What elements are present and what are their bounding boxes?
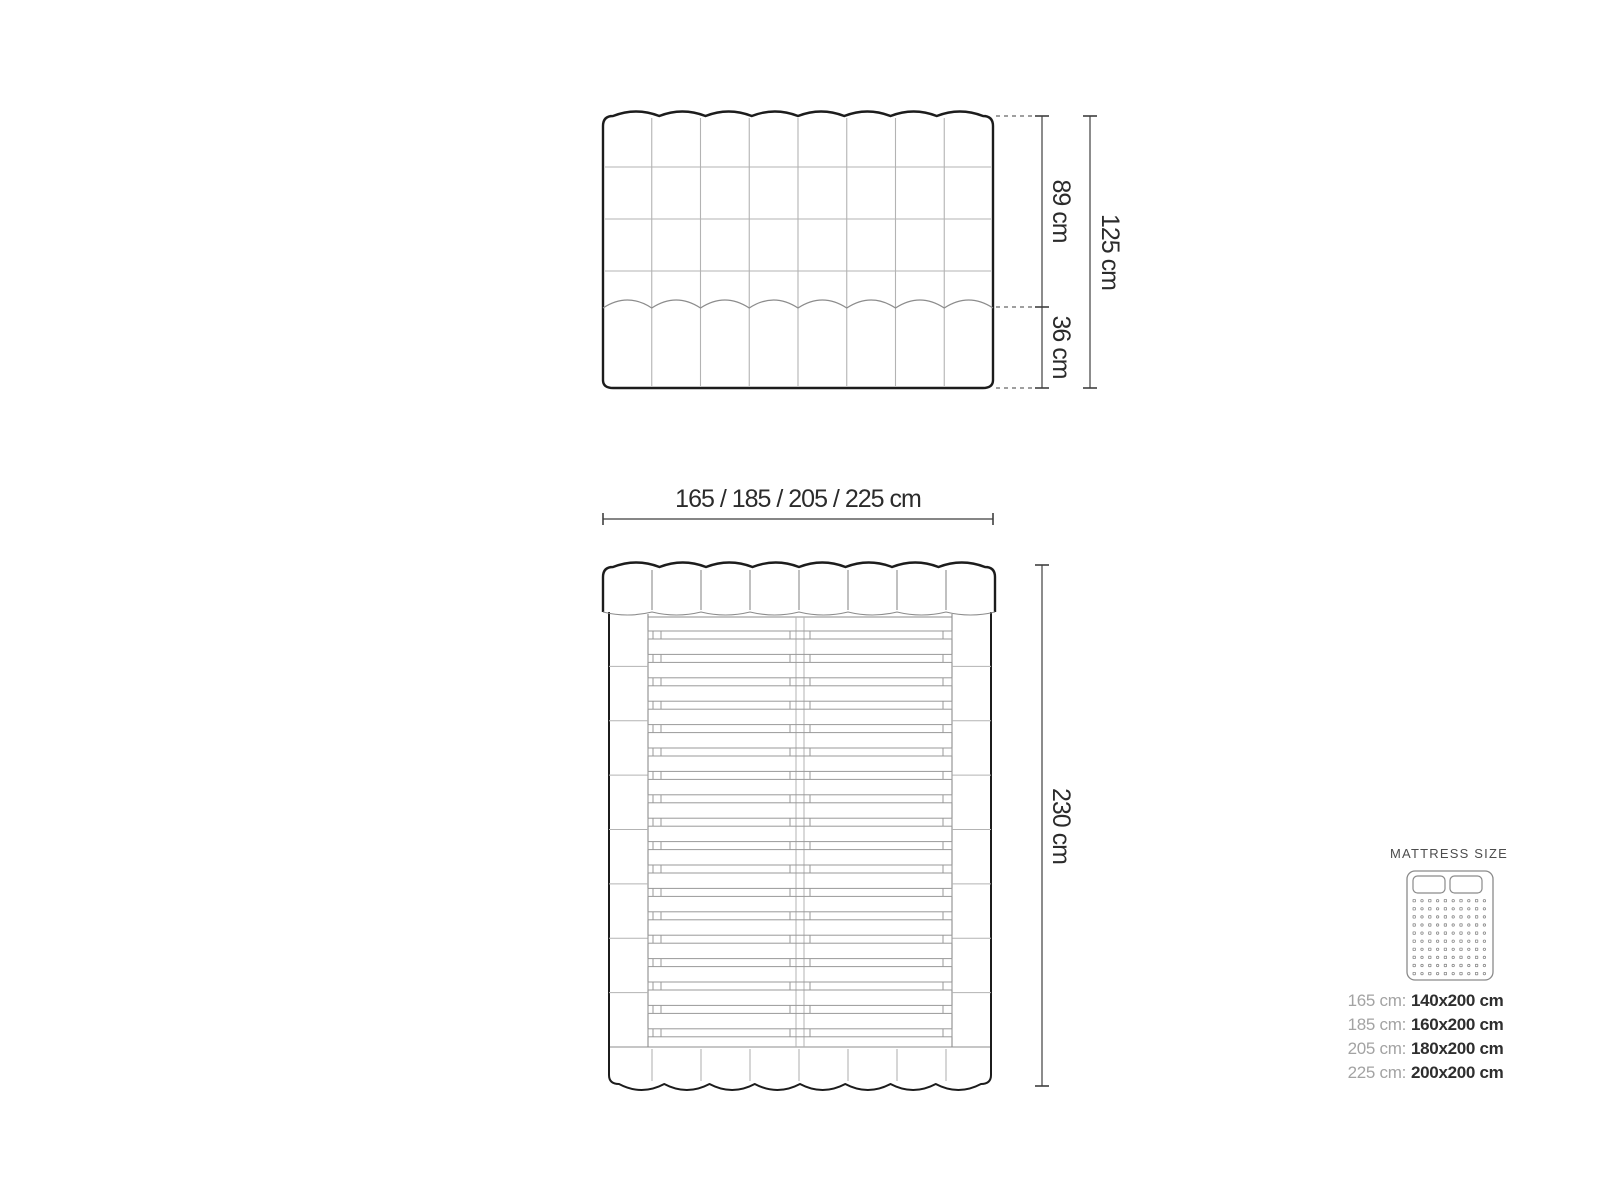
mattress-size-value: 140x200 cm — [1411, 991, 1503, 1011]
mattress-dot — [1460, 908, 1462, 910]
mattress-dot — [1475, 908, 1477, 910]
mattress-dot — [1429, 948, 1431, 950]
mattress-dot — [1444, 932, 1446, 934]
mattress-dot — [1429, 940, 1431, 942]
mattress-dot — [1413, 964, 1415, 966]
mattress-dot — [1436, 940, 1438, 942]
mattress-dot — [1421, 948, 1423, 950]
mattress-dot — [1413, 900, 1415, 902]
mattress-dot — [1460, 964, 1462, 966]
mattress-dot — [1444, 972, 1446, 974]
mattress-dot — [1483, 924, 1485, 926]
mattress-dot — [1421, 924, 1423, 926]
mattress-size-row: 225 cm:200x200 cm — [1340, 1063, 1540, 1087]
mattress-dot — [1468, 908, 1470, 910]
mattress-dot — [1436, 916, 1438, 918]
mattress-dot — [1483, 956, 1485, 958]
mattress-dot — [1468, 940, 1470, 942]
mattress-dot — [1444, 900, 1446, 902]
mattress-dot — [1444, 916, 1446, 918]
mattress-dot — [1452, 972, 1454, 974]
mattress-dot — [1460, 972, 1462, 974]
mattress-dot — [1413, 940, 1415, 942]
mattress-dot — [1421, 916, 1423, 918]
mattress-dot — [1483, 940, 1485, 942]
mattress-size-row: 165 cm:140x200 cm — [1340, 991, 1540, 1015]
mattress-dot — [1429, 900, 1431, 902]
pillow-left-icon — [1413, 876, 1445, 893]
mattress-dot — [1452, 932, 1454, 934]
mattress-dot — [1475, 916, 1477, 918]
top-view-dimensions: 230 cm — [1035, 565, 1075, 1086]
mattress-dot — [1475, 956, 1477, 958]
mattress-dot — [1429, 908, 1431, 910]
mattress-icon — [1406, 870, 1494, 982]
mattress-dot — [1413, 908, 1415, 910]
mattress-dot — [1468, 916, 1470, 918]
mattress-dot — [1413, 932, 1415, 934]
mattress-dot — [1421, 900, 1423, 902]
mattress-size-label: 205 cm: — [1340, 1039, 1406, 1059]
mattress-dot — [1421, 932, 1423, 934]
mattress-dot — [1452, 956, 1454, 958]
mattress-size-title: MATTRESS SIZE — [1349, 846, 1549, 861]
mattress-size-value: 180x200 cm — [1411, 1039, 1503, 1059]
pillow-right-icon — [1450, 876, 1482, 893]
mattress-dot — [1413, 916, 1415, 918]
mattress-dot — [1452, 940, 1454, 942]
mattress-dot — [1429, 964, 1431, 966]
mattress-dot — [1460, 900, 1462, 902]
mattress-dot — [1460, 924, 1462, 926]
mattress-dot — [1444, 964, 1446, 966]
mattress-dot — [1475, 964, 1477, 966]
mattress-dot — [1421, 972, 1423, 974]
mattress-dot — [1436, 972, 1438, 974]
mattress-dot — [1468, 900, 1470, 902]
mattress-dot — [1429, 972, 1431, 974]
mattress-dot — [1468, 964, 1470, 966]
mattress-dot — [1444, 956, 1446, 958]
mattress-size-value: 160x200 cm — [1411, 1015, 1503, 1035]
mattress-dot — [1452, 948, 1454, 950]
mattress-dot — [1483, 900, 1485, 902]
mattress-dot — [1413, 972, 1415, 974]
mattress-dot — [1452, 908, 1454, 910]
dim-width-label: 165 / 185 / 205 / 225 cm — [675, 485, 921, 513]
mattress-size-value: 200x200 cm — [1411, 1063, 1503, 1083]
width-dimension: 165 / 185 / 205 / 225 cm — [603, 485, 993, 525]
mattress-dot — [1444, 908, 1446, 910]
mattress-dot — [1436, 956, 1438, 958]
bed-dimension-diagram-page: { "front_view": { "dim_upper": "89 cm", … — [0, 0, 1600, 1200]
mattress-dot — [1468, 972, 1470, 974]
mattress-dot — [1421, 964, 1423, 966]
mattress-dot — [1436, 924, 1438, 926]
mattress-dot — [1444, 940, 1446, 942]
mattress-dot — [1460, 940, 1462, 942]
mattress-dot — [1436, 964, 1438, 966]
mattress-dot — [1444, 948, 1446, 950]
mattress-size-label: 225 cm: — [1340, 1063, 1406, 1083]
mattress-dot — [1475, 972, 1477, 974]
mattress-dot — [1452, 900, 1454, 902]
mattress-dot — [1429, 956, 1431, 958]
mattress-dot — [1475, 900, 1477, 902]
mattress-dot — [1483, 908, 1485, 910]
mattress-dot — [1468, 948, 1470, 950]
mattress-dot — [1413, 948, 1415, 950]
mattress-dot — [1475, 940, 1477, 942]
mattress-dot — [1475, 948, 1477, 950]
bed-frame-outline — [609, 612, 991, 1090]
mattress-dot — [1483, 964, 1485, 966]
mattress-dot — [1429, 932, 1431, 934]
mattress-dot — [1483, 932, 1485, 934]
mattress-dot — [1452, 916, 1454, 918]
mattress-dot — [1436, 900, 1438, 902]
mattress-dot — [1468, 932, 1470, 934]
dim-upper-height-label: 89 cm — [1047, 179, 1075, 242]
mattress-dot — [1483, 916, 1485, 918]
headboard-front-view — [603, 112, 1097, 389]
mattress-dot — [1483, 948, 1485, 950]
dim-length-label: 230 cm — [1047, 788, 1075, 864]
dim-total-height-label: 125 cm — [1096, 214, 1124, 290]
mattress-dot — [1429, 916, 1431, 918]
mattress-size-row: 205 cm:180x200 cm — [1340, 1039, 1540, 1063]
mattress-size-label: 185 cm: — [1340, 1015, 1406, 1035]
mattress-dot — [1460, 956, 1462, 958]
dim-lower-height-label: 36 cm — [1047, 315, 1075, 378]
mattress-dot — [1436, 948, 1438, 950]
mattress-dot — [1436, 932, 1438, 934]
mattress-dot — [1421, 956, 1423, 958]
mattress-dot — [1421, 908, 1423, 910]
mattress-dot — [1452, 964, 1454, 966]
mattress-dot — [1436, 908, 1438, 910]
mattress-dot — [1413, 956, 1415, 958]
mattress-dot — [1468, 924, 1470, 926]
mattress-quilting-dots — [1413, 900, 1486, 975]
mattress-dot — [1460, 948, 1462, 950]
mattress-dot — [1460, 916, 1462, 918]
mattress-size-label: 165 cm: — [1340, 991, 1406, 1011]
mattress-dot — [1475, 932, 1477, 934]
mattress-dot — [1444, 924, 1446, 926]
mattress-size-list: 165 cm:140x200 cm185 cm:160x200 cm205 cm… — [1340, 991, 1540, 1087]
mattress-dot — [1475, 924, 1477, 926]
headboard-front-dimensions: 89 cm 36 cm 125 cm — [1047, 179, 1124, 378]
bed-top-view — [603, 563, 995, 1091]
mattress-dot — [1460, 932, 1462, 934]
mattress-dot — [1421, 940, 1423, 942]
mattress-dot — [1452, 924, 1454, 926]
mattress-dot — [1468, 956, 1470, 958]
mattress-dot — [1429, 924, 1431, 926]
mattress-dot — [1413, 924, 1415, 926]
mattress-size-row: 185 cm:160x200 cm — [1340, 1015, 1540, 1039]
mattress-dot — [1483, 972, 1485, 974]
